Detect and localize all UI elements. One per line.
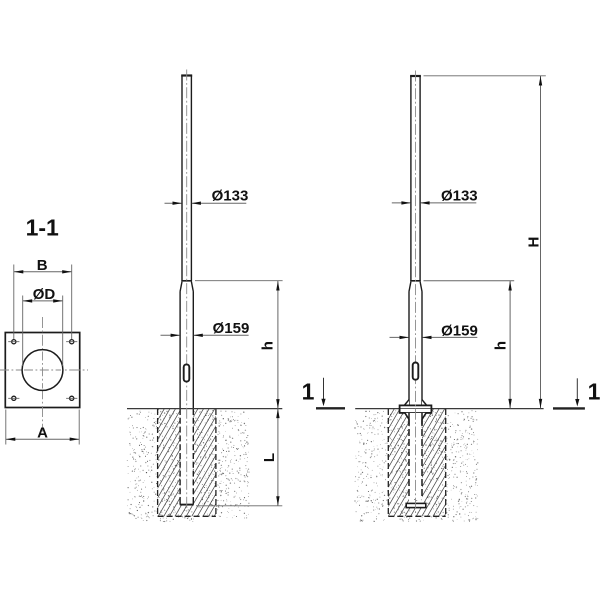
svg-text:Ø133: Ø133 [441, 187, 478, 204]
svg-text:L: L [261, 453, 278, 462]
svg-text:H: H [526, 237, 543, 248]
svg-text:1-1: 1-1 [26, 215, 59, 241]
svg-text:Ø159: Ø159 [441, 323, 478, 340]
svg-text:h: h [259, 341, 276, 350]
svg-text:A: A [37, 425, 48, 442]
svg-text:ØD: ØD [33, 286, 56, 303]
svg-text:h: h [492, 341, 509, 350]
svg-text:1: 1 [302, 378, 315, 404]
svg-text:Ø159: Ø159 [213, 320, 250, 337]
svg-text:Ø133: Ø133 [212, 188, 249, 205]
svg-text:B: B [37, 257, 48, 274]
svg-text:1: 1 [588, 379, 600, 405]
